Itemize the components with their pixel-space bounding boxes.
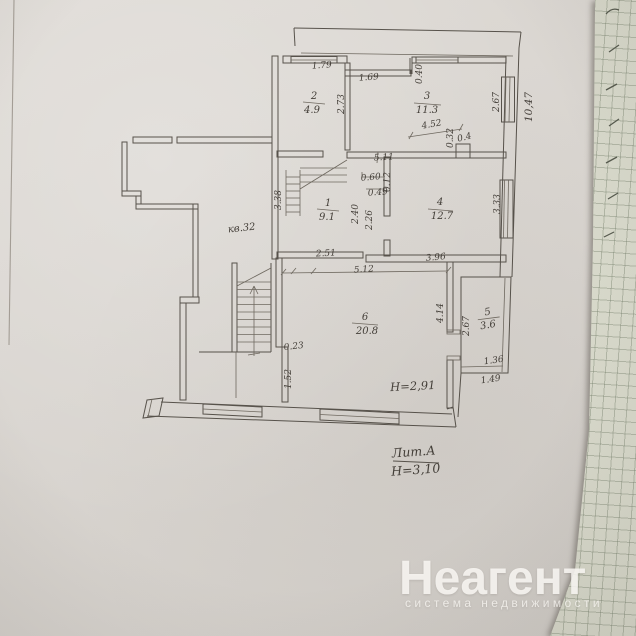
stairs xyxy=(199,160,347,398)
dimension-label: 3.33 xyxy=(493,194,503,214)
dimension-label: 0.4 xyxy=(456,131,473,144)
dimension-label: 5.12 xyxy=(354,264,375,275)
room-label-1: 1 9.1 xyxy=(317,198,339,223)
room-labels: 2 4.9 3 11.3 1 9.1 4 12.7 6 xyxy=(303,91,502,337)
dimension-label: 3.38 xyxy=(274,190,284,210)
room-number: 4 xyxy=(436,197,443,208)
dimension-label: 5.11 xyxy=(374,152,395,163)
floor-plan-drawing: 1.79 2.73 1.69 0.40 2.67 10,47 4.52 0.32… xyxy=(0,0,636,636)
dimension-label: 4.14 xyxy=(436,303,446,324)
room-area: 20.8 xyxy=(355,326,378,337)
room-label-6: 6 20.8 xyxy=(352,312,378,337)
room-label-2: 2 4.9 xyxy=(303,91,325,116)
dimension-label: 2.73 xyxy=(337,94,347,115)
annotations: кв.32 Н=2,91 Лит.А Н=3,10 xyxy=(227,222,440,479)
room6-height-note: Н=2,91 xyxy=(389,378,436,394)
room-area: 4.9 xyxy=(303,105,321,116)
dimension-label: 2.26 xyxy=(365,210,375,231)
room-area: 11.3 xyxy=(416,105,438,116)
room-label-5: 5 3.6 xyxy=(476,305,502,332)
room-number: 2 xyxy=(310,91,317,102)
room-number: 1 xyxy=(325,198,331,209)
dimension-label: 3.96 xyxy=(425,252,446,264)
room-number: 6 xyxy=(362,312,369,323)
dimension-label: 0.60 xyxy=(360,172,381,184)
apartment-label: кв.32 xyxy=(227,222,256,236)
dimension-label: 0.49 xyxy=(368,187,389,198)
dimension-label: 0.40 xyxy=(415,64,425,84)
dimension-label: 1.69 xyxy=(359,72,380,83)
dimension-label: 1.52 xyxy=(284,369,294,389)
dimension-label: 4.52 xyxy=(420,118,443,132)
dimension-label: 0.23 xyxy=(283,341,304,353)
floor-plan-photo: 1.79 2.73 1.69 0.40 2.67 10,47 4.52 0.32… xyxy=(0,0,636,636)
liter-label: Лит.А xyxy=(390,443,436,461)
page-fold-line xyxy=(9,0,14,345)
room-label-3: 3 11.3 xyxy=(414,91,441,116)
dimension-label: 0.32 xyxy=(446,128,456,148)
interior-walls xyxy=(276,63,511,417)
dimension-label: 2.67 xyxy=(462,316,472,337)
dimension-label: 2.67 xyxy=(492,92,502,113)
windows xyxy=(203,57,515,425)
room-area: 3.6 xyxy=(479,319,497,333)
dimension-label: 10,47 xyxy=(523,92,535,122)
dimension-label: 2.40 xyxy=(351,204,361,225)
dimension-label: 2.51 xyxy=(315,248,337,259)
watermark-tagline: система недвижимости xyxy=(405,596,603,610)
liter-height-note: Н=3,10 xyxy=(390,460,441,478)
room-label-4: 4 12.7 xyxy=(428,197,454,222)
room-number: 5 xyxy=(484,306,492,318)
room-area: 12.7 xyxy=(431,211,454,222)
room-number: 3 xyxy=(424,91,430,102)
dimension-label: 1.79 xyxy=(312,60,333,71)
dimension-label: 1.36 xyxy=(483,355,505,368)
dimension-label: 1.49 xyxy=(480,374,502,387)
room-area: 9.1 xyxy=(319,212,335,223)
